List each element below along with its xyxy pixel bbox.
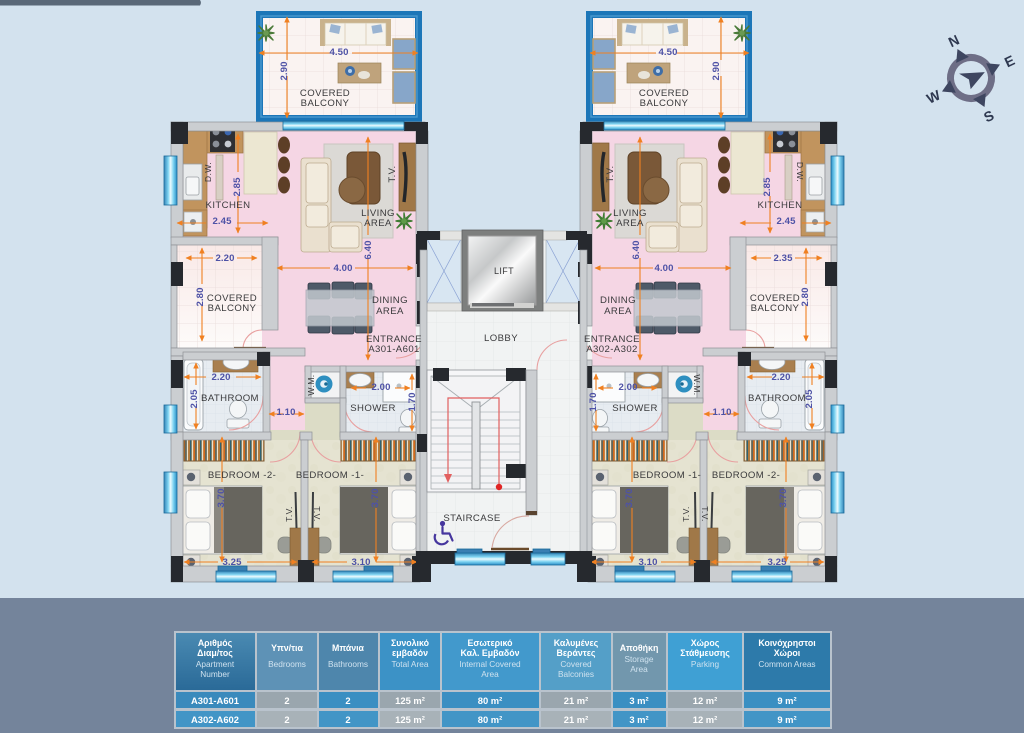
svg-text:3.70: 3.70 (778, 488, 789, 507)
svg-text:KITCHEN: KITCHEN (758, 200, 803, 211)
svg-text:Διαμ/τος: Διαμ/τος (197, 648, 233, 658)
svg-text:2.05: 2.05 (804, 389, 815, 409)
svg-text:2.20: 2.20 (771, 372, 790, 383)
svg-text:Υπν/τια: Υπν/τια (271, 643, 303, 653)
svg-text:3.70: 3.70 (370, 488, 381, 507)
svg-text:6.40: 6.40 (363, 240, 374, 259)
svg-text:Bathrooms: Bathrooms (328, 659, 368, 669)
svg-text:Συνολικό: Συνολικό (391, 638, 430, 648)
svg-text:3 m²: 3 m² (629, 695, 648, 706)
svg-text:2: 2 (345, 695, 350, 706)
svg-text:T.V.: T.V. (700, 506, 710, 522)
svg-text:BEDROOM -2-: BEDROOM -2- (712, 470, 780, 481)
svg-text:3 m²: 3 m² (629, 714, 648, 725)
svg-text:AREA: AREA (364, 218, 392, 229)
svg-text:Κοινόχρηστοι: Κοινόχρηστοι (758, 638, 816, 648)
svg-text:AREA: AREA (604, 306, 632, 317)
svg-text:AREA: AREA (616, 218, 644, 229)
svg-text:Καλ. Εμβαδόν: Καλ. Εμβαδόν (461, 648, 520, 658)
svg-text:Στάθμευσης: Στάθμευσης (680, 648, 730, 658)
svg-text:Total Area: Total Area (392, 659, 429, 669)
svg-text:LIFT: LIFT (494, 266, 514, 276)
svg-text:STAIRCASE: STAIRCASE (443, 513, 500, 524)
svg-text:9 m²: 9 m² (777, 714, 796, 725)
svg-text:SHOWER: SHOWER (350, 403, 396, 414)
svg-text:W.M.: W.M. (692, 374, 702, 395)
svg-text:SHOWER: SHOWER (612, 403, 658, 414)
svg-text:2.00: 2.00 (618, 382, 637, 393)
svg-text:2.85: 2.85 (232, 177, 243, 197)
svg-text:Internal Covered: Internal Covered (459, 659, 521, 669)
svg-text:1.70: 1.70 (588, 392, 599, 411)
svg-text:3.25: 3.25 (222, 557, 242, 568)
svg-text:KITCHEN: KITCHEN (206, 200, 251, 211)
svg-text:Αριθμός: Αριθμός (198, 638, 233, 648)
svg-text:80 m²: 80 m² (478, 695, 503, 706)
svg-text:W.M.: W.M. (306, 374, 316, 395)
svg-text:1.70: 1.70 (407, 392, 418, 411)
svg-text:A302-A602: A302-A602 (191, 714, 239, 725)
svg-text:D.W.: D.W. (203, 162, 213, 182)
svg-text:T.V.: T.V. (387, 165, 398, 182)
svg-text:BEDROOM -1-: BEDROOM -1- (633, 470, 701, 481)
svg-text:Καλυμένες: Καλυμένες (554, 638, 599, 648)
svg-text:T.V.: T.V. (284, 506, 294, 522)
svg-text:Parking: Parking (691, 659, 720, 669)
svg-text:T.V.: T.V. (312, 506, 322, 522)
svg-text:Covered: Covered (560, 659, 592, 669)
svg-text:Εσωτερικό: Εσωτερικό (467, 638, 513, 648)
svg-text:2.45: 2.45 (776, 216, 796, 227)
svg-text:21 m²: 21 m² (564, 695, 589, 706)
svg-text:Αποθήκη: Αποθήκη (620, 643, 659, 653)
svg-text:Balconies: Balconies (558, 669, 594, 679)
svg-text:T.V.: T.V. (605, 165, 616, 182)
svg-text:Number: Number (200, 669, 230, 679)
svg-text:2.35: 2.35 (773, 253, 793, 264)
svg-text:2.80: 2.80 (195, 287, 206, 306)
svg-text:BEDROOM -2-: BEDROOM -2- (208, 470, 276, 481)
svg-text:Βεράντες: Βεράντες (557, 648, 596, 658)
svg-text:2.05: 2.05 (189, 389, 200, 409)
svg-text:BATHROOM: BATHROOM (201, 393, 259, 404)
svg-text:2.90: 2.90 (279, 61, 290, 80)
svg-text:BALCONY: BALCONY (640, 98, 689, 109)
svg-text:3.25: 3.25 (767, 557, 787, 568)
svg-text:Bedrooms: Bedrooms (268, 659, 306, 669)
svg-text:12 m²: 12 m² (693, 714, 718, 725)
svg-text:2.20: 2.20 (215, 253, 234, 264)
svg-text:2.85: 2.85 (762, 177, 773, 197)
svg-text:A301-A601: A301-A601 (191, 695, 239, 706)
svg-text:A301-A601: A301-A601 (368, 344, 420, 355)
svg-text:3.10: 3.10 (351, 557, 370, 568)
svg-text:Area: Area (481, 669, 499, 679)
svg-text:DINING: DINING (600, 295, 636, 306)
svg-text:9 m²: 9 m² (777, 695, 796, 706)
svg-text:εμβαδόν: εμβαδόν (392, 648, 428, 658)
svg-text:4.50: 4.50 (329, 47, 348, 58)
svg-text:Χώρος: Χώρος (691, 638, 720, 648)
svg-text:2: 2 (284, 695, 289, 706)
svg-text:3.10: 3.10 (638, 557, 657, 568)
svg-text:2: 2 (284, 714, 289, 725)
svg-text:6.40: 6.40 (631, 240, 642, 259)
svg-text:BALCONY: BALCONY (751, 303, 800, 314)
svg-text:LOBBY: LOBBY (484, 333, 518, 344)
svg-text:4.00: 4.00 (333, 263, 352, 274)
svg-text:2.45: 2.45 (212, 216, 232, 227)
svg-text:4.00: 4.00 (654, 263, 673, 274)
svg-text:Μπάνια: Μπάνια (332, 643, 365, 653)
svg-text:4.50: 4.50 (658, 47, 677, 58)
svg-text:1.10: 1.10 (276, 407, 295, 418)
svg-text:1.10: 1.10 (712, 407, 731, 418)
svg-text:A302-A302: A302-A302 (586, 344, 638, 355)
svg-text:DINING: DINING (372, 295, 408, 306)
svg-text:2: 2 (345, 714, 350, 725)
svg-text:D.W.: D.W. (795, 162, 805, 182)
svg-text:BEDROOM -1-: BEDROOM -1- (296, 470, 364, 481)
svg-text:Χώροι: Χώροι (774, 648, 801, 658)
svg-text:3.70: 3.70 (624, 488, 635, 507)
svg-text:Storage: Storage (624, 654, 653, 664)
svg-text:125 m²: 125 m² (395, 695, 425, 706)
svg-text:Apartment: Apartment (196, 659, 235, 669)
svg-text:2.80: 2.80 (800, 287, 811, 306)
svg-text:2.20: 2.20 (211, 372, 230, 383)
svg-text:12 m²: 12 m² (693, 695, 718, 706)
svg-text:21 m²: 21 m² (564, 714, 589, 725)
svg-text:AREA: AREA (376, 306, 404, 317)
svg-text:2.00: 2.00 (371, 382, 390, 393)
svg-text:T.V.: T.V. (681, 506, 691, 522)
svg-text:80 m²: 80 m² (478, 714, 503, 725)
svg-text:BALCONY: BALCONY (208, 303, 257, 314)
svg-text:125 m²: 125 m² (395, 714, 425, 725)
svg-text:BATHROOM: BATHROOM (748, 393, 806, 404)
svg-text:Common Areas: Common Areas (758, 659, 815, 669)
svg-text:Area: Area (630, 664, 648, 674)
svg-text:2.90: 2.90 (711, 61, 722, 80)
svg-text:3.70: 3.70 (216, 488, 227, 507)
svg-text:BALCONY: BALCONY (301, 98, 350, 109)
